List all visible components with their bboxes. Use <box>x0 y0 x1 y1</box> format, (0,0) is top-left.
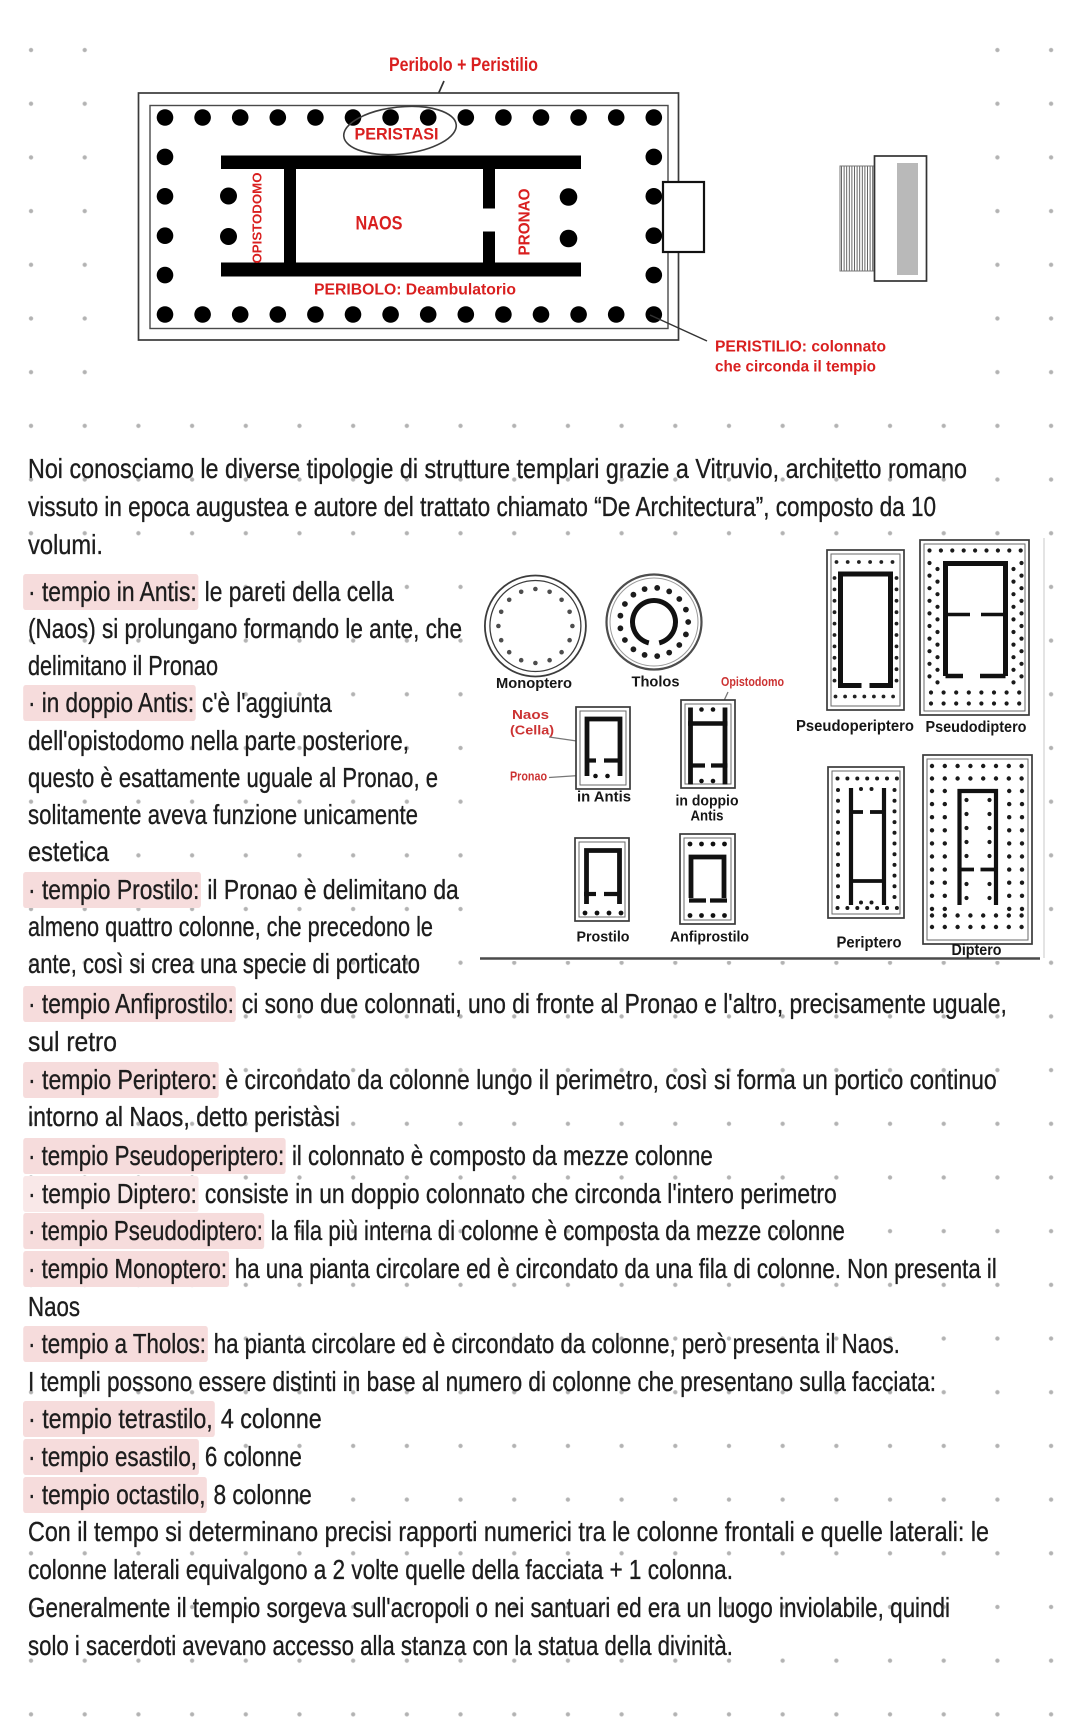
svg-text:Periptero: Periptero <box>837 935 902 952</box>
svg-text:Prostilo: Prostilo <box>577 929 630 946</box>
svg-text:Monoptero: Monoptero <box>496 675 572 692</box>
svg-text:Pseudodiptero: Pseudodiptero <box>926 719 1027 736</box>
svg-text:Peribolo + Peristilio: Peribolo + Peristilio <box>389 55 538 76</box>
svg-text:PERISTILIO: colonnato: PERISTILIO: colonnato <box>715 339 886 356</box>
svg-text:Opistodomo: Opistodomo <box>721 675 784 689</box>
svg-text:PRONAO: PRONAO <box>517 189 534 256</box>
svg-text:PERISTASI: PERISTASI <box>355 126 439 144</box>
svg-text:Diptero: Diptero <box>952 942 1002 959</box>
svg-text:che circonda il tempio: che circonda il tempio <box>715 359 876 376</box>
svg-text:OPISTODOMO: OPISTODOMO <box>251 172 265 263</box>
svg-text:PERIBOLO: Deambulatorio: PERIBOLO: Deambulatorio <box>314 282 516 299</box>
svg-text:(Cella): (Cella) <box>510 724 554 738</box>
svg-text:NAOS: NAOS <box>356 214 403 235</box>
svg-text:Naos: Naos <box>512 708 549 722</box>
svg-text:Anfiprostilo: Anfiprostilo <box>670 929 749 946</box>
svg-text:Antis: Antis <box>691 808 724 825</box>
svg-text:in Antis: in Antis <box>577 789 631 806</box>
svg-text:Pseudoperiptero: Pseudoperiptero <box>796 718 914 735</box>
svg-text:Tholos: Tholos <box>632 674 680 691</box>
